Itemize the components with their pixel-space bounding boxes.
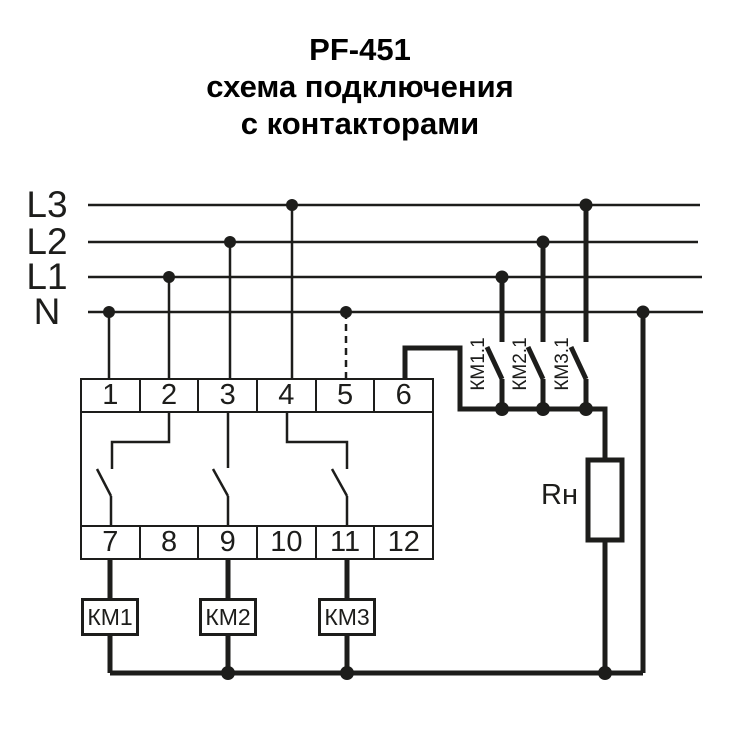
terminal-3: 3 (197, 380, 256, 411)
terminal-10: 10 (256, 527, 315, 558)
junction-dot (340, 666, 354, 680)
contact-label-km3-1: КМ3.1 (553, 329, 573, 399)
coil-km1: КМ1 (81, 598, 139, 636)
diagram-title: PF-451 схема подключения с контакторами (0, 31, 720, 142)
junction-dot (163, 271, 175, 283)
terminal-6: 6 (373, 380, 432, 411)
junction-dot (103, 306, 115, 318)
load-resistor (588, 460, 622, 540)
load-resistor-label: Rн (518, 479, 578, 511)
junction-dot (580, 199, 593, 212)
junction-dot (495, 402, 509, 416)
terminal-7: 7 (82, 527, 139, 558)
terminal-1: 1 (82, 380, 139, 411)
coil-km3: КМ3 (318, 598, 376, 636)
junction-dot (286, 199, 298, 211)
bus-label-l3: L3 (16, 185, 78, 225)
terminal-11: 11 (315, 527, 374, 558)
junction-dot (598, 666, 612, 680)
terminal-8: 8 (139, 527, 198, 558)
terminal-9: 9 (197, 527, 256, 558)
relay-bottom-terminal-row: 7 8 9 10 11 12 (80, 525, 434, 560)
junction-dot (579, 402, 593, 416)
title-line3: с контакторами (0, 105, 720, 142)
contact-label-km1-1: КМ1.1 (469, 329, 489, 399)
km3-1-blade (571, 347, 586, 379)
contact-label-km2-1: КМ2.1 (511, 329, 531, 399)
km1-1-blade (487, 347, 502, 379)
terminal-5: 5 (315, 380, 374, 411)
title-model: PF-451 (0, 31, 720, 68)
terminal-2: 2 (139, 380, 198, 411)
terminal-4: 4 (256, 380, 315, 411)
junction-dot (221, 666, 235, 680)
relay-body (80, 411, 434, 527)
bus-label-n: N (16, 292, 78, 332)
junction-dot (537, 236, 550, 249)
junction-dot (340, 306, 352, 318)
terminal-12: 12 (373, 527, 432, 558)
wire-terminal6-to-load (405, 348, 605, 460)
coil-km2: КМ2 (199, 598, 257, 636)
junction-dot (637, 306, 650, 319)
junction-dot (496, 271, 509, 284)
relay-top-terminal-row: 1 2 3 4 5 6 (80, 378, 434, 413)
title-line2: схема подключения (0, 68, 720, 105)
wiring-diagram: PF-451 схема подключения с контакторами … (0, 0, 750, 750)
junction-dot (536, 402, 550, 416)
junction-dot (224, 236, 236, 248)
